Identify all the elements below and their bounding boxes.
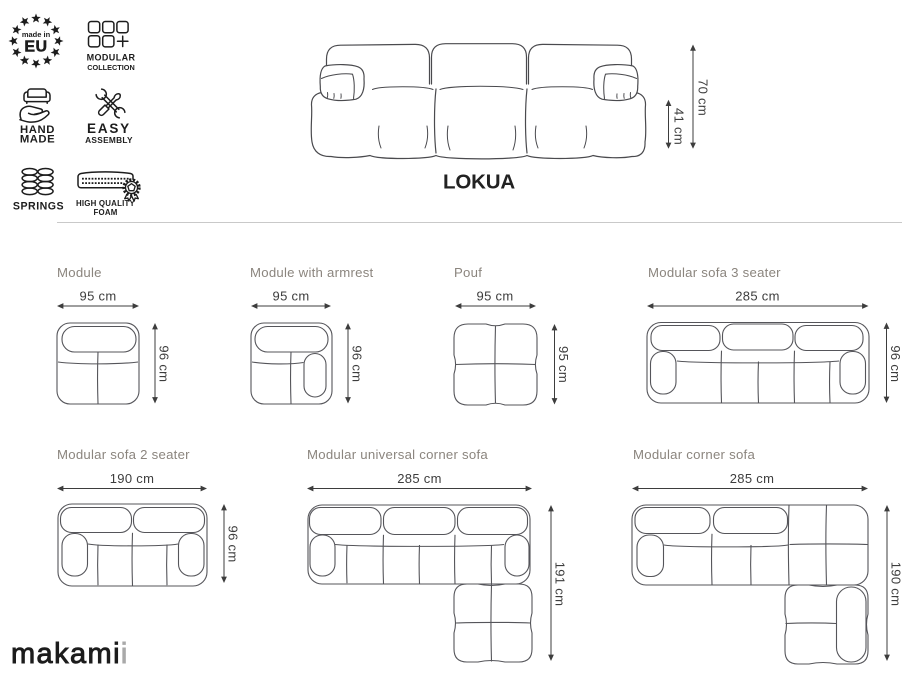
svg-text:EU: EU: [24, 39, 47, 56]
svg-text:Modular sofa 2 seater: Modular sofa 2 seater: [57, 447, 190, 462]
svg-text:HIGH QUALITY: HIGH QUALITY: [76, 199, 135, 208]
svg-text:285 cm: 285 cm: [397, 471, 441, 486]
svg-text:SPRINGS: SPRINGS: [13, 200, 64, 212]
svg-text:96 cm: 96 cm: [350, 345, 365, 382]
svg-text:95 cm: 95 cm: [273, 289, 310, 304]
svg-text:190 cm: 190 cm: [110, 471, 154, 486]
svg-text:Pouf: Pouf: [454, 265, 482, 280]
svg-text:95 cm: 95 cm: [477, 289, 514, 304]
svg-text:191 cm: 191 cm: [553, 562, 568, 606]
svg-text:190 cm: 190 cm: [889, 562, 904, 606]
svg-text:Modular universal corner sofa: Modular universal corner sofa: [307, 447, 488, 462]
svg-text:Module with armrest: Module with armrest: [250, 265, 374, 280]
svg-text:70 cm: 70 cm: [696, 79, 711, 116]
svg-text:96 cm: 96 cm: [157, 345, 172, 382]
svg-text:95 cm: 95 cm: [556, 346, 571, 383]
svg-text:95 cm: 95 cm: [80, 289, 117, 304]
svg-text:FOAM: FOAM: [93, 208, 117, 217]
svg-text:LOKUA: LOKUA: [443, 171, 515, 194]
svg-text:285 cm: 285 cm: [730, 471, 774, 486]
svg-text:MODULAR: MODULAR: [87, 53, 136, 63]
svg-text:EASY: EASY: [87, 121, 131, 136]
svg-text:96 cm: 96 cm: [888, 345, 903, 382]
svg-text:ASSEMBLY: ASSEMBLY: [85, 135, 133, 145]
svg-text:Modular sofa 3 seater: Modular sofa 3 seater: [648, 265, 781, 280]
svg-text:MADE: MADE: [20, 133, 55, 145]
svg-text:makamii: makamii: [11, 638, 129, 670]
svg-text:COLLECTION: COLLECTION: [87, 63, 134, 72]
svg-text:Module: Module: [57, 265, 102, 280]
svg-text:Modular corner sofa: Modular corner sofa: [633, 447, 755, 462]
svg-text:285 cm: 285 cm: [735, 289, 779, 304]
svg-text:96 cm: 96 cm: [226, 526, 241, 563]
svg-text:41 cm: 41 cm: [672, 108, 687, 145]
